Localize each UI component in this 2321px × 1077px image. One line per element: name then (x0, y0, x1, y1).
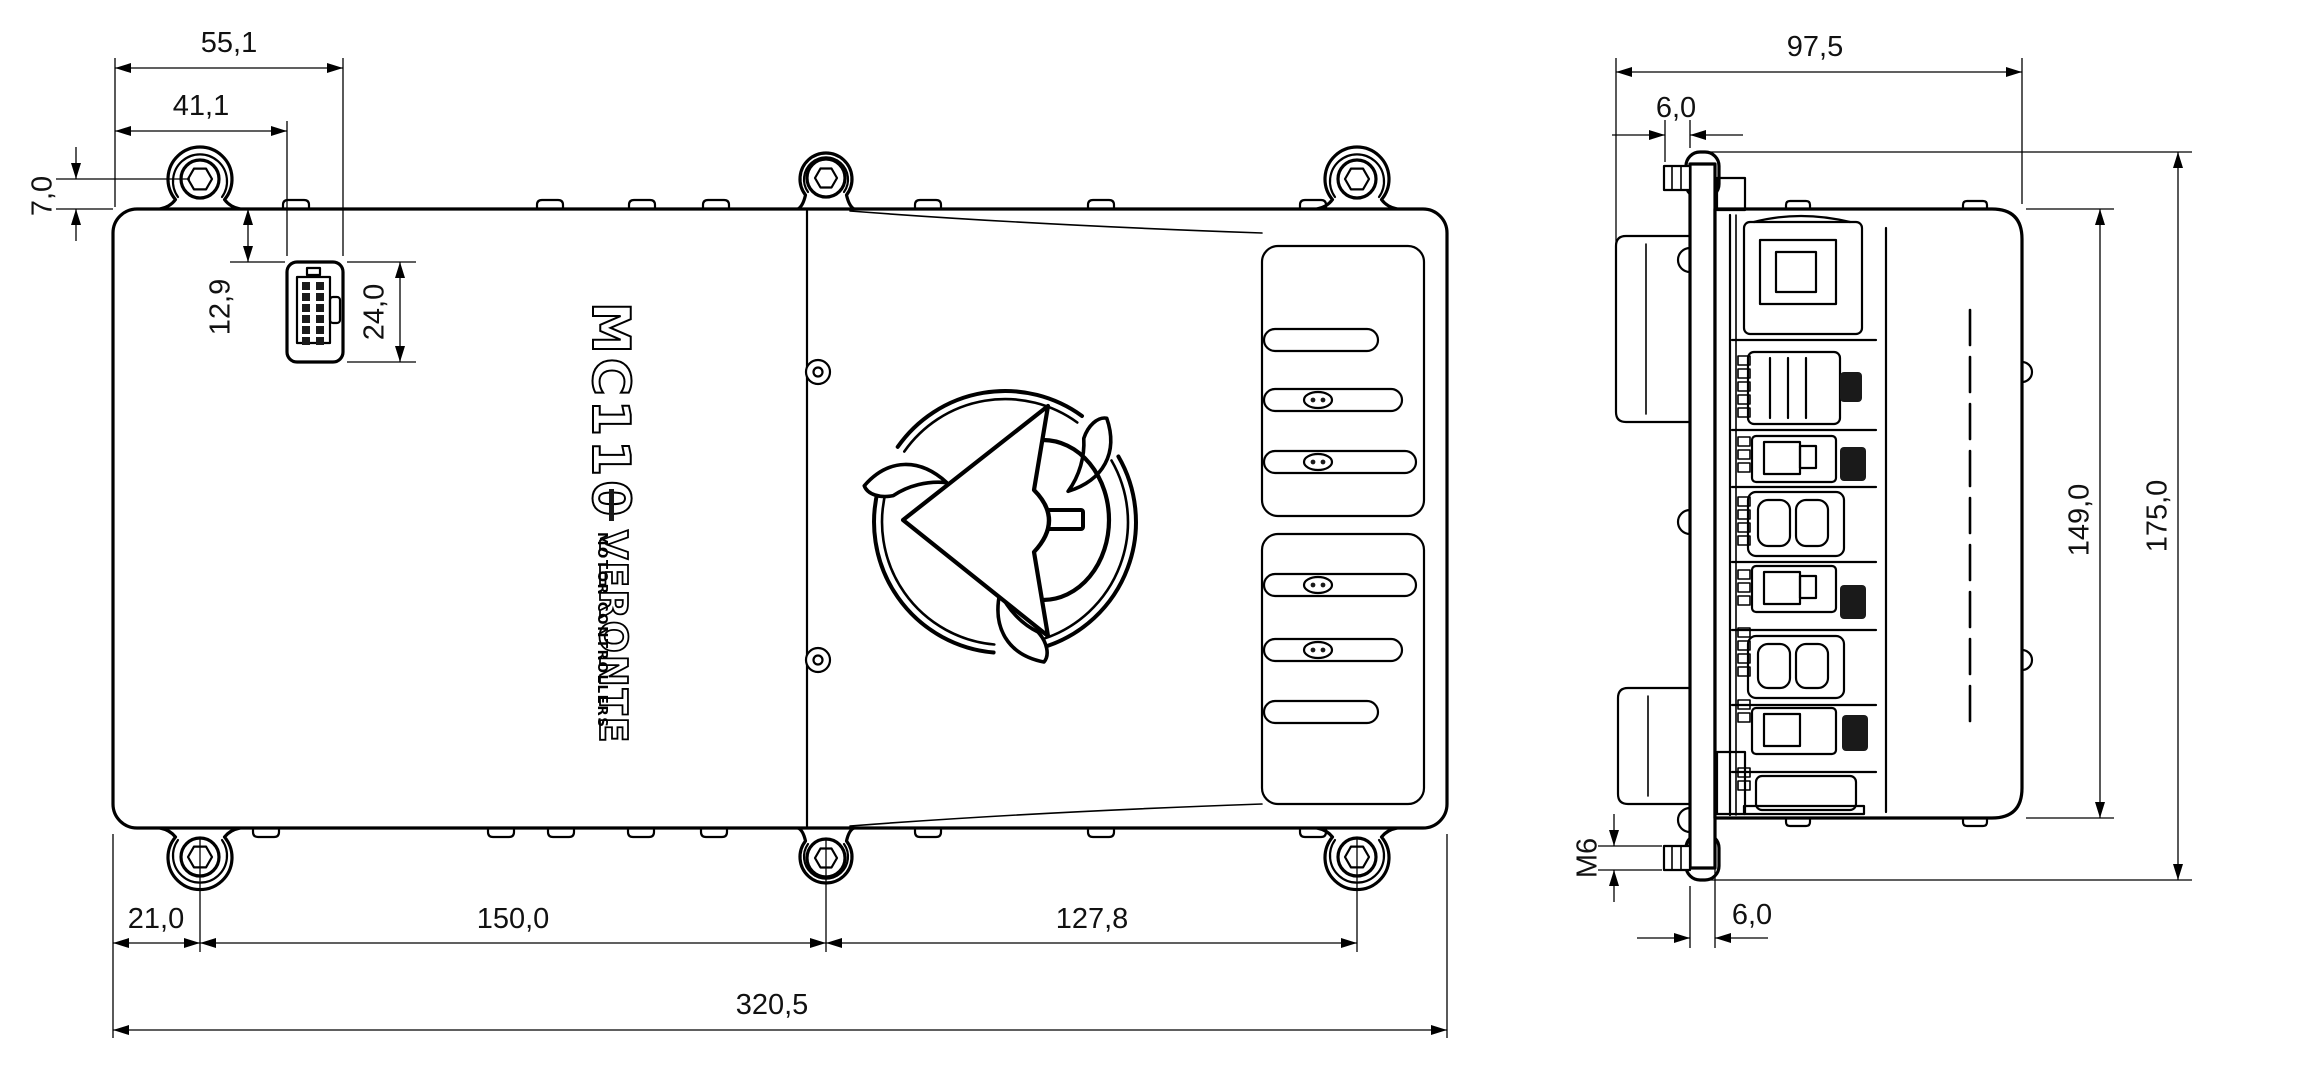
m6-stud (1664, 846, 1690, 870)
dim-label: 12,9 (205, 279, 237, 335)
logo-tagline-text: MOTOR CONTROLLERS (594, 532, 610, 729)
dim-label: 24,0 (359, 284, 391, 340)
dim-label: 7,0 (27, 176, 59, 216)
screw-hole (1338, 160, 1376, 198)
dim-label: 127,8 (1056, 903, 1129, 935)
m6-stud (1664, 166, 1690, 190)
flange-boss (1678, 510, 1690, 534)
dim-label: 150,0 (477, 903, 550, 935)
mounting-flange (1678, 152, 1719, 880)
dim-thread-callout: M6 (1572, 814, 1662, 902)
dim-label: 97,5 (1787, 31, 1843, 63)
lid-screw (806, 648, 830, 672)
dim-label: 55,1 (201, 27, 257, 59)
aux-connector (287, 262, 343, 362)
dim-body-height: 149,0 (2026, 209, 2114, 818)
drawing-sheet: MC110 VERONTE MOTOR CONTROLLERS (0, 0, 2321, 1077)
dim-label: 21,0 (128, 903, 184, 935)
top-view: MC110 VERONTE MOTOR CONTROLLERS (113, 147, 1447, 890)
lid-screw (806, 360, 830, 384)
dim-label: 320,5 (736, 989, 809, 1021)
dim-label: 6,0 (1732, 899, 1772, 931)
flange-boss (1678, 808, 1690, 832)
logo-model-text: MC110 (580, 302, 640, 520)
dim-label: 41,1 (173, 90, 229, 122)
screw-hole (807, 159, 845, 197)
cad-drawing: MC110 VERONTE MOTOR CONTROLLERS (0, 0, 2321, 1077)
logo-separator-bar (609, 489, 614, 521)
dim-overall-length: 320,5 (113, 834, 1447, 1038)
dim-label: 6,0 (1656, 92, 1696, 124)
dim-label: M6 (1572, 838, 1604, 878)
side-view (1616, 152, 2032, 880)
dim-label: 175,0 (2142, 480, 2174, 553)
dim-label: 149,0 (2064, 484, 2096, 557)
flange-boss (1678, 248, 1690, 272)
